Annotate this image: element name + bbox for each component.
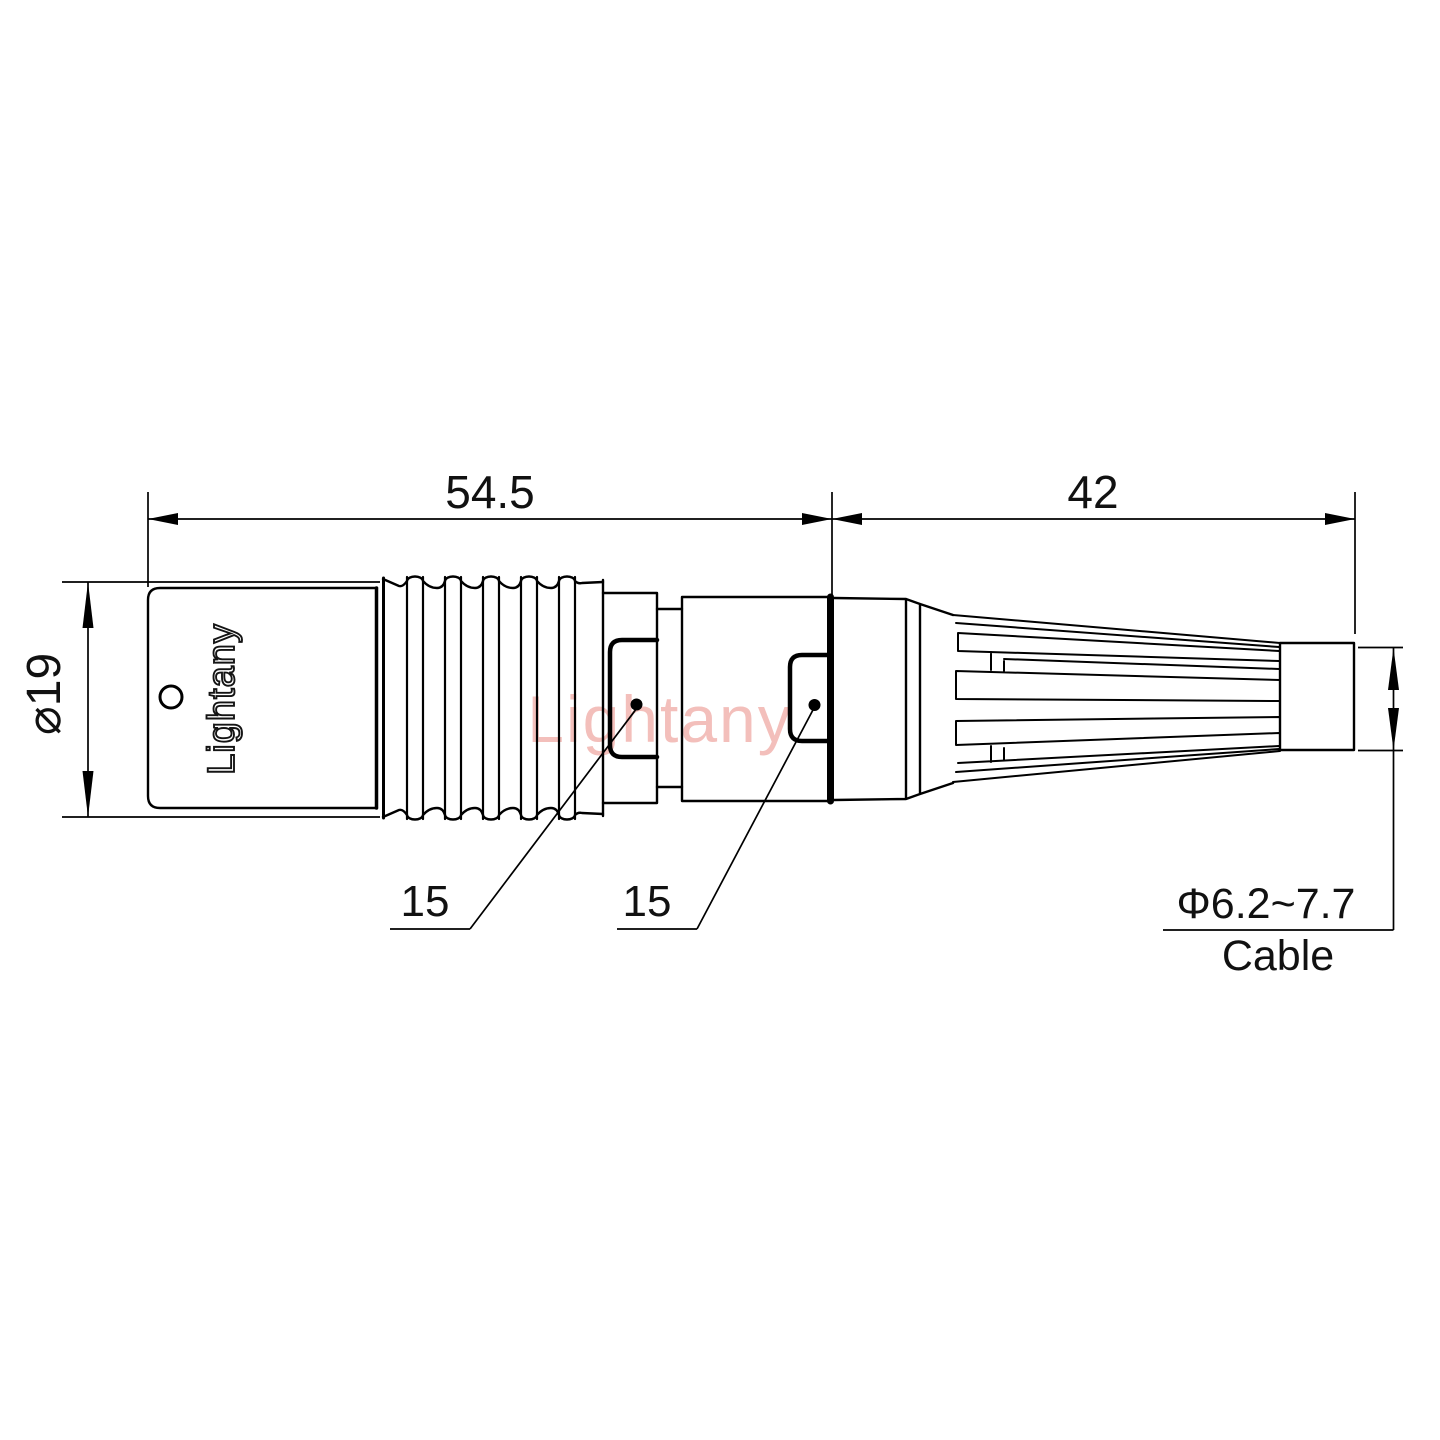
arrow-54-left [148, 513, 178, 525]
front-length-label: 54.5 [445, 466, 535, 518]
arrow-42-left [832, 513, 862, 525]
nut-top-edge [383, 577, 603, 589]
front-callout-dot [631, 699, 643, 711]
rear-callout-label: 15 [623, 877, 672, 926]
arrow-dia19-bottom [83, 771, 94, 817]
arrow-dia19-top [83, 582, 94, 628]
rear-length-label: 42 [1067, 466, 1118, 518]
arrow-cable-bottom [1388, 708, 1399, 750]
cable-range-label: Φ6.2~7.7 [1177, 880, 1356, 928]
cable-end-collar [1280, 643, 1354, 750]
cable-extension-lines [1358, 648, 1403, 751]
connector-dimension-drawing: Lightany Lightany [0, 0, 1440, 1440]
rear-callout-dot [809, 699, 821, 711]
technical-drawing-page: Lightany Lightany [0, 0, 1440, 1440]
boot-rear-cap [834, 598, 953, 800]
watermark-text: Lightany [527, 682, 793, 756]
body-hole [160, 686, 182, 708]
nut-bottom-edge [383, 808, 603, 820]
front-callout-label: 15 [401, 877, 450, 926]
arrow-54-right [802, 513, 832, 525]
latch-window-rear [790, 655, 828, 741]
outer-diameter-label: ⌀19 [18, 653, 71, 735]
arrow-42-right [1325, 513, 1355, 525]
arrowheads-and-dots [83, 513, 1400, 817]
body-marking-text: Lightany [201, 623, 243, 775]
cable-word-label: Cable [1222, 932, 1334, 980]
arrow-cable-top [1388, 648, 1399, 690]
length-extension-lines [148, 492, 1355, 634]
boot-fingers [953, 615, 1280, 782]
